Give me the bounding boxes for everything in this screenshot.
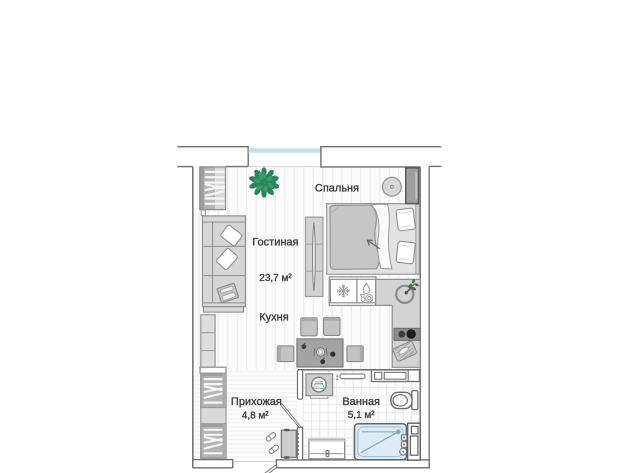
svg-text:4,8 м²: 4,8 м²: [242, 410, 270, 421]
svg-text:23,7 м²: 23,7 м²: [259, 273, 292, 284]
svg-text:5,1 м²: 5,1 м²: [348, 410, 376, 421]
svg-text:Прихожая: Прихожая: [231, 396, 282, 408]
svg-text:Ванная: Ванная: [342, 396, 380, 408]
svg-text:Гостиная: Гостиная: [252, 236, 298, 248]
svg-text:Кухня: Кухня: [259, 312, 288, 324]
svg-text:Спальня: Спальня: [315, 183, 359, 195]
